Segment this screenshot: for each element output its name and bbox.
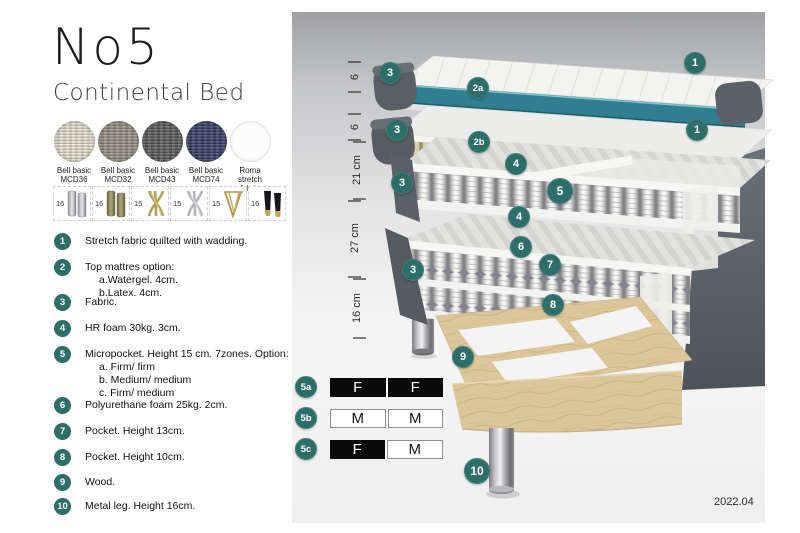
- feature-badge: 6: [54, 397, 71, 414]
- fabric-circle-mcd74: [186, 121, 227, 162]
- leg-option: 15: [131, 186, 169, 221]
- firmness-cell: F: [330, 440, 385, 459]
- scale-label-3: 21 cm: [351, 155, 363, 185]
- firmness-bar-5b: M M: [330, 409, 443, 428]
- firmness-cell: M: [387, 440, 444, 459]
- feature-text: Metal leg. Height 16cm.: [85, 500, 195, 513]
- leg-height: 16: [251, 199, 261, 208]
- callout-2b: 2b: [468, 131, 490, 153]
- leg-option: 15: [209, 186, 247, 221]
- firmness-cell: M: [330, 409, 386, 428]
- fabric-circle-mcd43: [142, 121, 183, 162]
- feature-text: Top mattres option:: [85, 261, 178, 274]
- callout-3-top: 3: [379, 62, 401, 84]
- feature-item-7: 7 Pocket. Height 13cm.: [54, 423, 304, 440]
- feature-badge: 8: [54, 449, 71, 466]
- feature-text: Wood.: [85, 476, 115, 489]
- feature-item-4: 4 HR foam 30kg. 3cm.: [54, 320, 304, 337]
- feature-badge: 9: [54, 474, 71, 491]
- fabric-circle-mcd32: [98, 121, 139, 162]
- firmness-cell: F: [388, 378, 444, 397]
- fabric-swatch: Bell basicMCD43: [141, 121, 183, 193]
- leg-icon-cross-silver: [183, 189, 206, 218]
- feature-text: Pocket. Height 10cm.: [85, 451, 185, 464]
- firmness-bar-5c: F M: [330, 440, 443, 459]
- feature-badge: 7: [54, 423, 71, 440]
- fabric-swatch: Bell basicMCD32: [97, 121, 139, 193]
- feature-item-5: 5 Micropocket. Height 15 cm. 7zones. Opt…: [54, 346, 304, 400]
- product-type: Continental Bed: [53, 80, 245, 106]
- feature-item-8: 8 Pocket. Height 10cm.: [54, 449, 304, 466]
- fabric-swatch: Romastretch fabric: [229, 121, 271, 193]
- callout-2a: 2a: [467, 77, 489, 99]
- scale-label-4: 27 cm: [349, 223, 361, 253]
- version-label: 2022.04: [714, 496, 754, 508]
- callout-9: 9: [452, 346, 474, 368]
- leg-icon-cylinder-olive: [105, 189, 128, 218]
- callout-7: 7: [539, 254, 561, 276]
- leg-height: 15: [134, 199, 144, 208]
- fabric-swatch: Bell basicMCD74: [185, 121, 227, 193]
- feature-text: Stretch fabric quilted with wadding.: [85, 235, 247, 248]
- feature-badge: 10: [54, 498, 71, 515]
- callout-1-top: 1: [684, 52, 706, 74]
- callout-8: 8: [542, 294, 564, 316]
- fabric-swatch: Bell basicMCD36: [53, 121, 95, 193]
- feature-subtext: a.Watergel. 4cm.: [99, 274, 178, 287]
- firmness-cell: F: [330, 378, 386, 397]
- scale-label-1: 6: [349, 74, 361, 80]
- feature-text: Micropocket. Height 15 cm. 7zones. Optio…: [85, 348, 289, 361]
- feature-badge: 3: [54, 294, 71, 311]
- callout-1-second: 1: [686, 119, 708, 141]
- feature-text: Polyurethane foam 25kg. 2cm.: [85, 399, 227, 412]
- feature-text: HR foam 30kg. 3cm.: [85, 322, 181, 335]
- callout-10: 10: [464, 458, 490, 484]
- callout-4-upper: 4: [505, 153, 527, 175]
- scale-label-2: 6: [349, 124, 361, 130]
- feature-badge: 1: [54, 233, 71, 250]
- leg-option: 15: [170, 186, 208, 221]
- feature-item-6: 6 Polyurethane foam 25kg. 2cm.: [54, 397, 304, 414]
- callout-4-lower: 4: [508, 206, 530, 228]
- feature-badge: 5: [54, 346, 71, 363]
- feature-text: Pocket. Height 13cm.: [85, 425, 185, 438]
- leg-height: 16: [56, 199, 66, 208]
- wood-base: [436, 297, 692, 432]
- fabric-swatches: Bell basicMCD36 Bell basicMCD32 Bell bas…: [53, 121, 271, 193]
- feature-item-9: 9 Wood.: [54, 474, 304, 491]
- feature-item-10: 10 Metal leg. Height 16cm.: [54, 498, 304, 515]
- leg-icon-cylinder-silver: [66, 189, 89, 218]
- feature-badge: 2: [54, 259, 71, 276]
- leg-icon-taper-black-gold: [261, 189, 284, 218]
- leg-height: 16: [95, 199, 105, 208]
- feature-item-3: 3 Fabric.: [54, 294, 304, 311]
- fabric-label: Bell basicMCD36: [57, 166, 91, 184]
- feature-item-1: 1 Stretch fabric quilted with wadding.: [54, 233, 304, 250]
- feature-subtext: b. Medium/ medium: [99, 374, 289, 387]
- feature-badge: 4: [54, 320, 71, 337]
- leg-icon-hairpin-gold: [222, 189, 245, 218]
- leg-option: 16: [248, 186, 286, 221]
- firmness-row-5b: 5b M M: [295, 407, 443, 429]
- leg-icon-cross-gold: [144, 189, 167, 218]
- firmness-row-5a: 5a F F: [295, 376, 443, 398]
- scale-label-5: 16 cm: [351, 293, 363, 323]
- callout-3-fourth: 3: [402, 259, 424, 281]
- callout-5: 5: [547, 178, 573, 204]
- feature-text: Fabric.: [85, 296, 117, 309]
- fabric-circle-mcd36: [54, 121, 95, 162]
- leg-height: 15: [173, 199, 183, 208]
- callout-3-second: 3: [386, 119, 408, 141]
- leg-option: 16: [92, 186, 130, 221]
- firmness-row-5c: 5c F M: [295, 438, 443, 460]
- product-sheet: 6 6 21 cm 27 cm 16 cm: [0, 0, 800, 533]
- product-name: No5: [52, 18, 161, 76]
- leg-options: 16 16 15 15: [53, 186, 286, 221]
- callout-6: 6: [510, 236, 532, 258]
- callout-3-third: 3: [391, 172, 413, 194]
- fabric-label: Bell basicMCD74: [189, 166, 223, 184]
- leg-height: 15: [212, 199, 222, 208]
- fabric-label: Bell basicMCD43: [145, 166, 179, 184]
- feature-subtext: a. Firm/ firm: [99, 361, 289, 374]
- fabric-label: Bell basicMCD32: [101, 166, 135, 184]
- firmness-cell: M: [388, 409, 444, 428]
- firmness-bar-5a: F F: [330, 378, 443, 397]
- leg-option: 16: [53, 186, 91, 221]
- fabric-circle-roma: [230, 121, 271, 162]
